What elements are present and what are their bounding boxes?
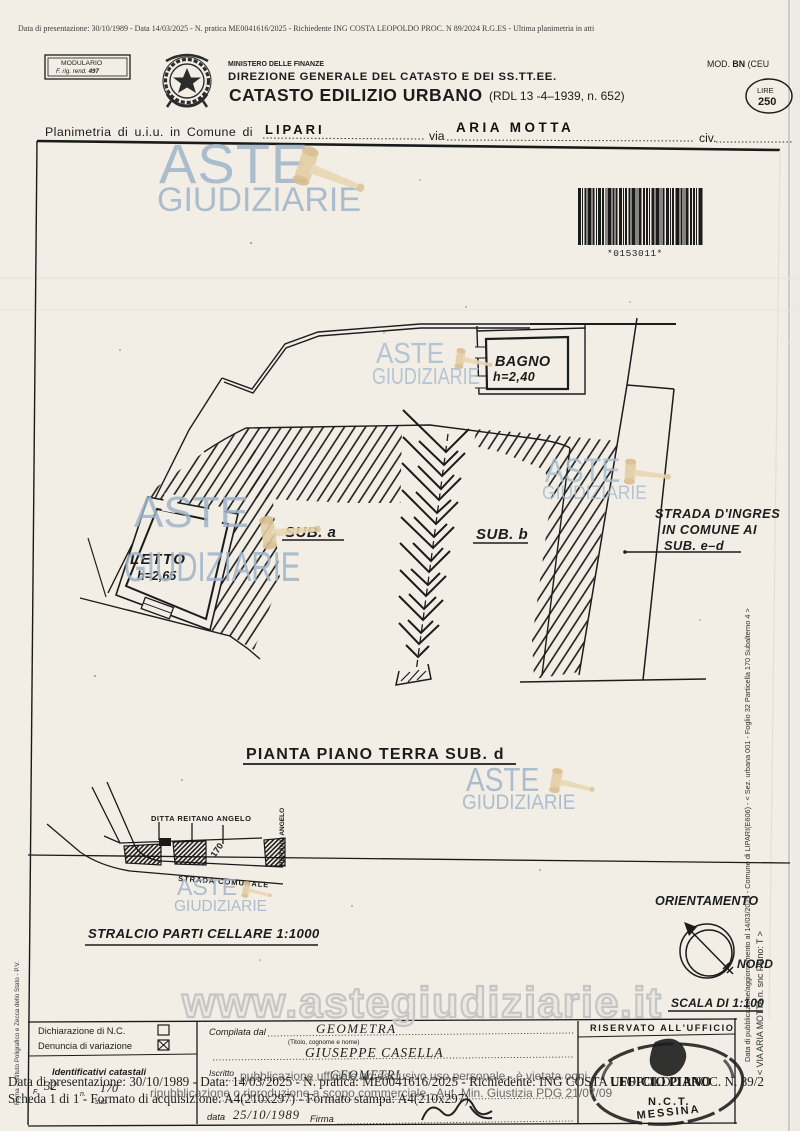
svg-text:Scheda 1 di 1 - Formato di acq: Scheda 1 di 1 - Formato di acquisizione:… xyxy=(8,1091,469,1106)
svg-text:Data di presentazione: 30/10/1: Data di presentazione: 30/10/1989 - Data… xyxy=(18,24,595,33)
svg-text:GIUDIZIARIE: GIUDIZIARIE xyxy=(372,364,480,390)
svg-text:MODULARIO: MODULARIO xyxy=(61,60,102,67)
svg-text:SUB. e–d: SUB. e–d xyxy=(664,538,725,553)
svg-text:25/10/1989: 25/10/1989 xyxy=(233,1108,300,1122)
svg-text:MOD. BN (CEU: MOD. BN (CEU xyxy=(707,59,769,69)
svg-text:SUB. b: SUB. b xyxy=(476,526,528,543)
svg-text:DIREZIONE GENERALE DEL CATASTO: DIREZIONE GENERALE DEL CATASTO E DEI SS.… xyxy=(228,71,557,83)
svg-text:Data di pubblicazione/aggiorna: Data di pubblicazione/aggiornamento al 1… xyxy=(743,608,752,1062)
svg-text:civ.: civ. xyxy=(699,131,716,145)
svg-text:STRALCIO PARTI CELLARE 1:1000: STRALCIO PARTI CELLARE 1:1000 xyxy=(88,926,320,941)
svg-text:(RDL 13 -4–1939, n. 652): (RDL 13 -4–1939, n. 652) xyxy=(489,89,625,103)
svg-text:PIANTA PIANO TERRA SUB. d: PIANTA PIANO TERRA SUB. d xyxy=(246,746,505,763)
svg-text:STRADA D'INGRES: STRADA D'INGRES xyxy=(655,506,780,521)
svg-text:Roma - Istituto Poligrafico e: Roma - Istituto Poligrafico e Zecca dell… xyxy=(14,961,21,1105)
svg-text:CATASTO EDILIZIO URBANO: CATASTO EDILIZIO URBANO xyxy=(229,85,483,105)
svg-text:data: data xyxy=(207,1112,225,1122)
svg-text:< VIA ARIA MOTTA n. snc Piano:: < VIA ARIA MOTTA n. snc Piano: T > xyxy=(755,931,765,1075)
svg-text:IN COMUNE AI: IN COMUNE AI xyxy=(662,522,757,537)
svg-text:h=2,40: h=2,40 xyxy=(493,370,535,384)
svg-text:ASTE: ASTE xyxy=(134,488,249,537)
svg-text:GIUDIZIARIE: GIUDIZIARIE xyxy=(542,481,647,503)
svg-text:Denuncia di variazione: Denuncia di variazione xyxy=(38,1041,132,1051)
svg-text:www.astegiudiziarie.it: www.astegiudiziarie.it xyxy=(181,979,663,1027)
svg-text:250: 250 xyxy=(758,96,776,108)
svg-text:Firma: Firma xyxy=(310,1114,334,1124)
svg-text:Dichiarazione di N.C.: Dichiarazione di N.C. xyxy=(38,1026,125,1036)
svg-text:GIUDIZIARIE: GIUDIZIARIE xyxy=(462,791,575,814)
svg-text:Compilata dal: Compilata dal xyxy=(209,1027,267,1037)
svg-text:REITANO ANGELO: REITANO ANGELO xyxy=(279,808,286,866)
svg-text:F. rig. rend. 497: F. rig. rend. 497 xyxy=(56,68,99,75)
svg-text:GIUDIZIARIE: GIUDIZIARIE xyxy=(124,543,300,591)
svg-text:ASTE: ASTE xyxy=(177,874,237,900)
svg-text:UFFICIO PIANO: UFFICIO PIANO xyxy=(610,1074,711,1089)
svg-text:MINISTERO DELLE FINANZE: MINISTERO DELLE FINANZE xyxy=(228,61,324,68)
svg-text:GIUSEPPE CASELLA: GIUSEPPE CASELLA xyxy=(305,1045,444,1060)
svg-text:ARIA MOTTA: ARIA MOTTA xyxy=(456,120,574,135)
svg-text:via: via xyxy=(429,129,445,143)
svg-text:BAGNO: BAGNO xyxy=(495,354,551,370)
svg-text:GIUDIZIARIE: GIUDIZIARIE xyxy=(157,181,361,219)
svg-text:GIUDIZIARIE: GIUDIZIARIE xyxy=(174,898,267,915)
svg-text:*0153011*: *0153011* xyxy=(607,248,663,259)
svg-text:LIRE: LIRE xyxy=(757,86,774,95)
svg-text:DITTA REITANO ANGELO: DITTA REITANO ANGELO xyxy=(151,814,251,823)
